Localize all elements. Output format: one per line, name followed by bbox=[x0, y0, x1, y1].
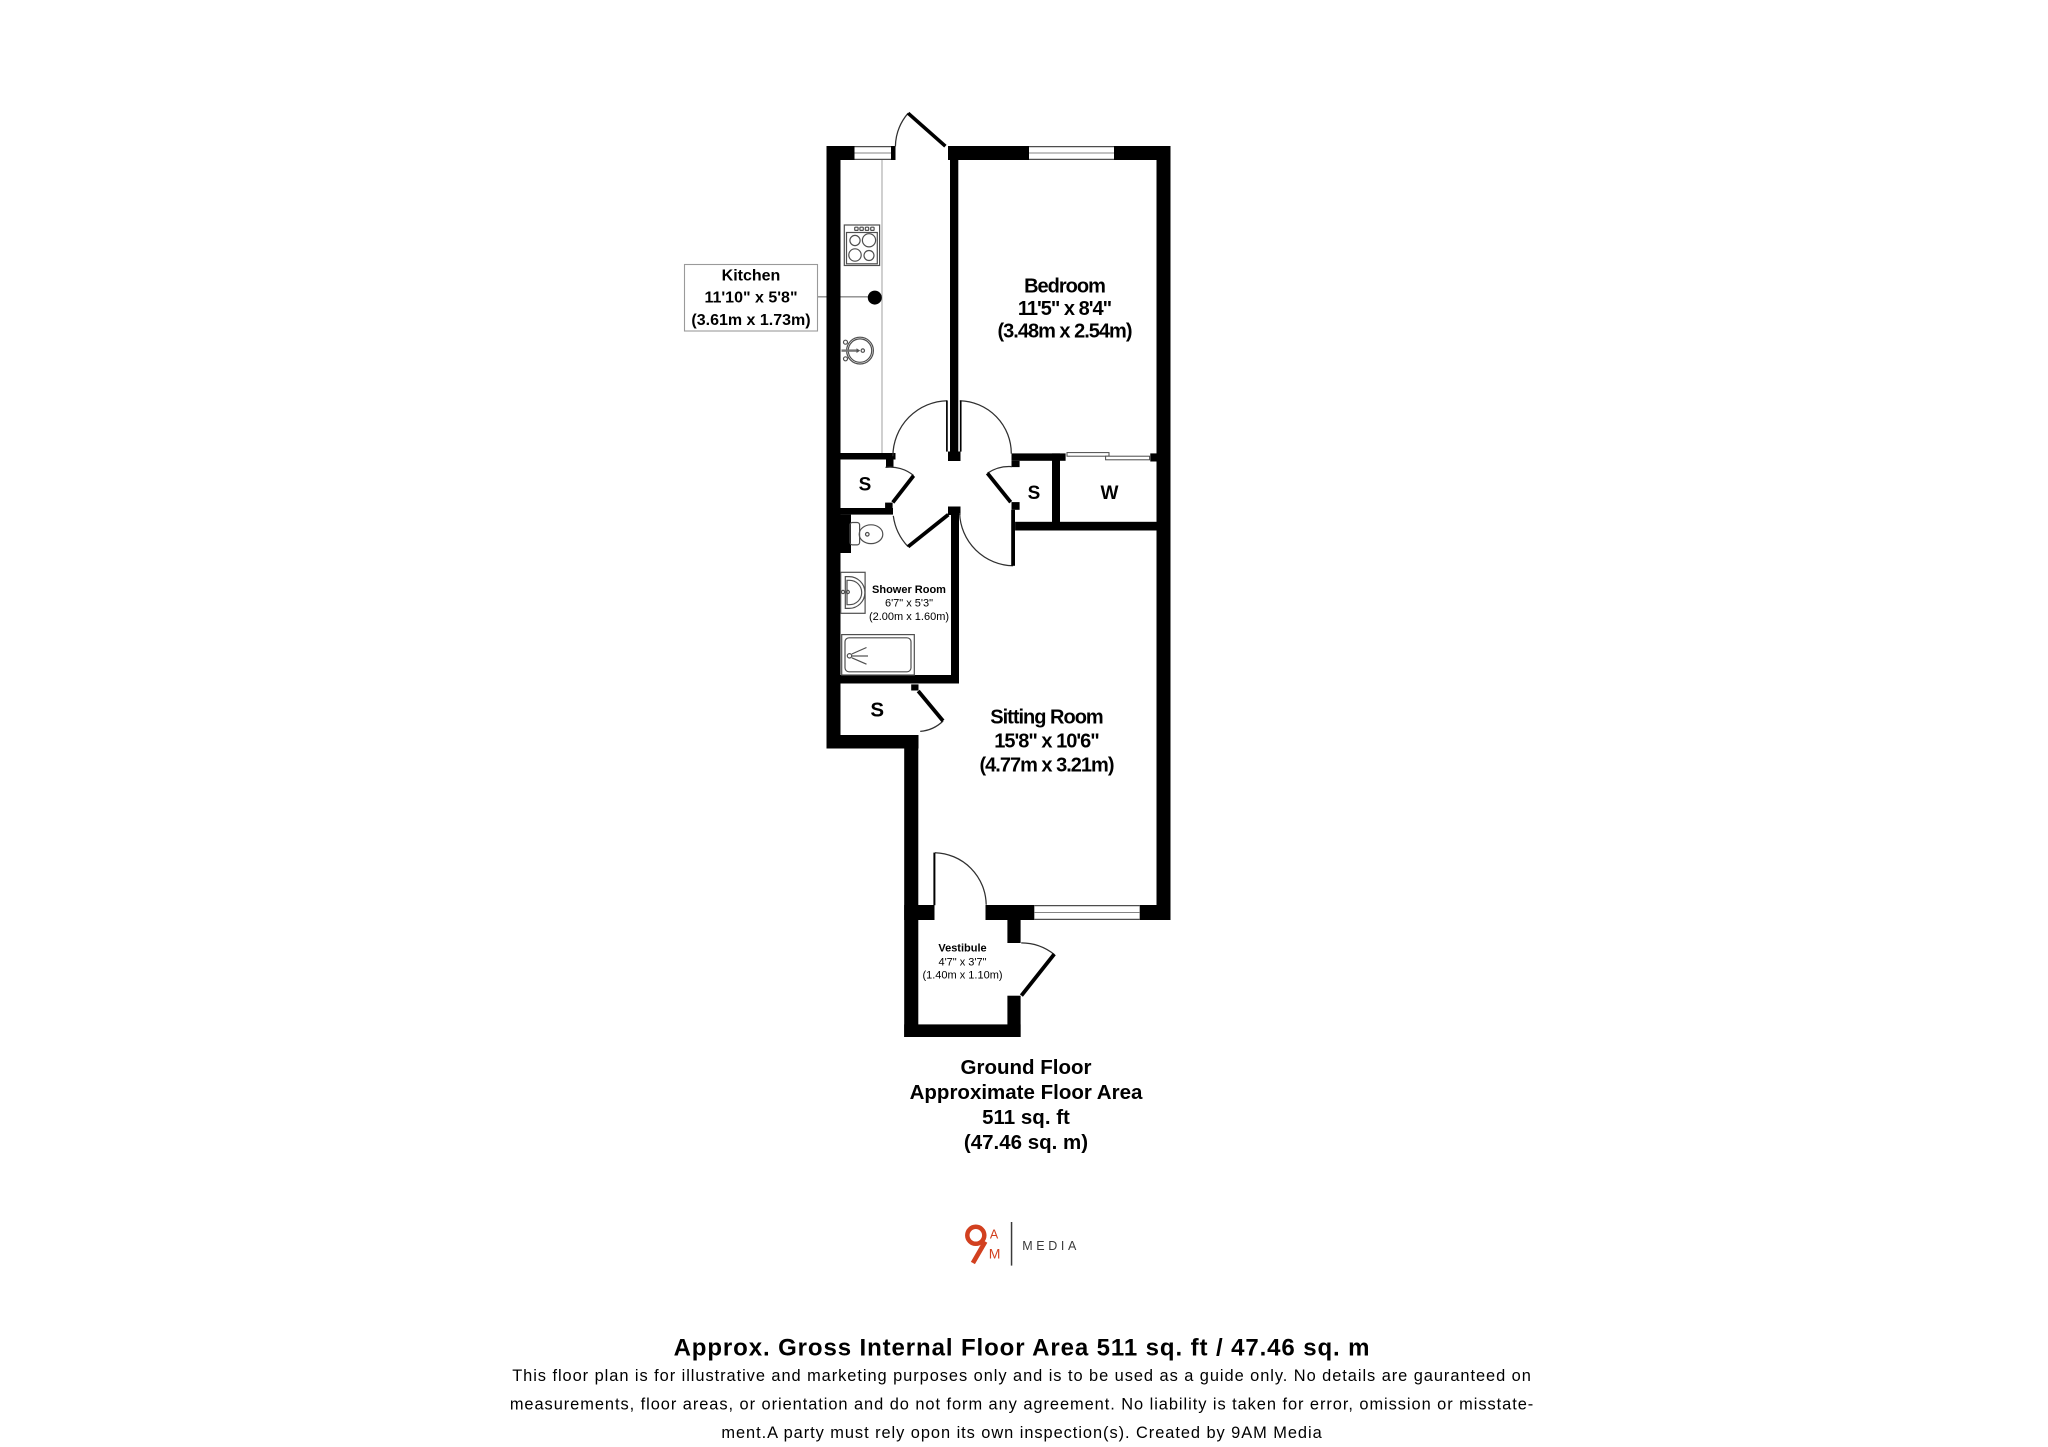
svg-text:11'5" x 8'4": 11'5" x 8'4" bbox=[1018, 298, 1112, 320]
svg-text:Sitting Room: Sitting Room bbox=[990, 707, 1103, 729]
svg-text:Vestibule: Vestibule bbox=[938, 943, 986, 955]
svg-text:S: S bbox=[859, 474, 872, 495]
svg-text:(1.40m x 1.10m): (1.40m x 1.10m) bbox=[922, 970, 1002, 982]
svg-text:M: M bbox=[989, 1245, 1001, 1261]
svg-text:Approx. Gross Internal Floor A: Approx. Gross Internal Floor Area 511 sq… bbox=[674, 1335, 1371, 1362]
svg-text:15'8" x 10'6": 15'8" x 10'6" bbox=[994, 731, 1099, 753]
svg-text:(3.61m x 1.73m): (3.61m x 1.73m) bbox=[691, 312, 810, 329]
svg-text:A: A bbox=[990, 1228, 999, 1242]
svg-text:4'7" x 3'7": 4'7" x 3'7" bbox=[938, 957, 986, 969]
svg-text:S: S bbox=[870, 699, 884, 722]
svg-text:measurements, floor areas, or: measurements, floor areas, or orientatio… bbox=[510, 1396, 1534, 1414]
svg-text:ment.A party must rely opon it: ment.A party must rely opon its own insp… bbox=[721, 1424, 1322, 1442]
svg-text:S: S bbox=[1028, 483, 1041, 504]
svg-text:Ground Floor: Ground Floor bbox=[961, 1056, 1092, 1079]
svg-text:Approximate Floor Area: Approximate Floor Area bbox=[910, 1081, 1143, 1104]
svg-text:This floor plan is for illustr: This floor plan is for illustrative and … bbox=[512, 1367, 1532, 1385]
svg-text:511 sq. ft: 511 sq. ft bbox=[982, 1106, 1070, 1129]
svg-text:W: W bbox=[1101, 483, 1119, 504]
svg-text:(2.00m x 1.60m): (2.00m x 1.60m) bbox=[869, 611, 949, 623]
svg-text:11'10" x 5'8": 11'10" x 5'8" bbox=[704, 290, 797, 307]
svg-text:Kitchen: Kitchen bbox=[722, 268, 781, 285]
svg-text:6'7" x 5'3": 6'7" x 5'3" bbox=[885, 598, 933, 610]
svg-text:MEDIA: MEDIA bbox=[1022, 1239, 1080, 1253]
svg-text:(4.77m x 3.21m): (4.77m x 3.21m) bbox=[980, 755, 1114, 777]
svg-text:(47.46 sq. m): (47.46 sq. m) bbox=[964, 1131, 1088, 1154]
svg-text:(3.48m x 2.54m): (3.48m x 2.54m) bbox=[998, 321, 1132, 343]
svg-text:Bedroom: Bedroom bbox=[1024, 276, 1105, 298]
svg-text:Shower Room: Shower Room bbox=[872, 584, 946, 596]
